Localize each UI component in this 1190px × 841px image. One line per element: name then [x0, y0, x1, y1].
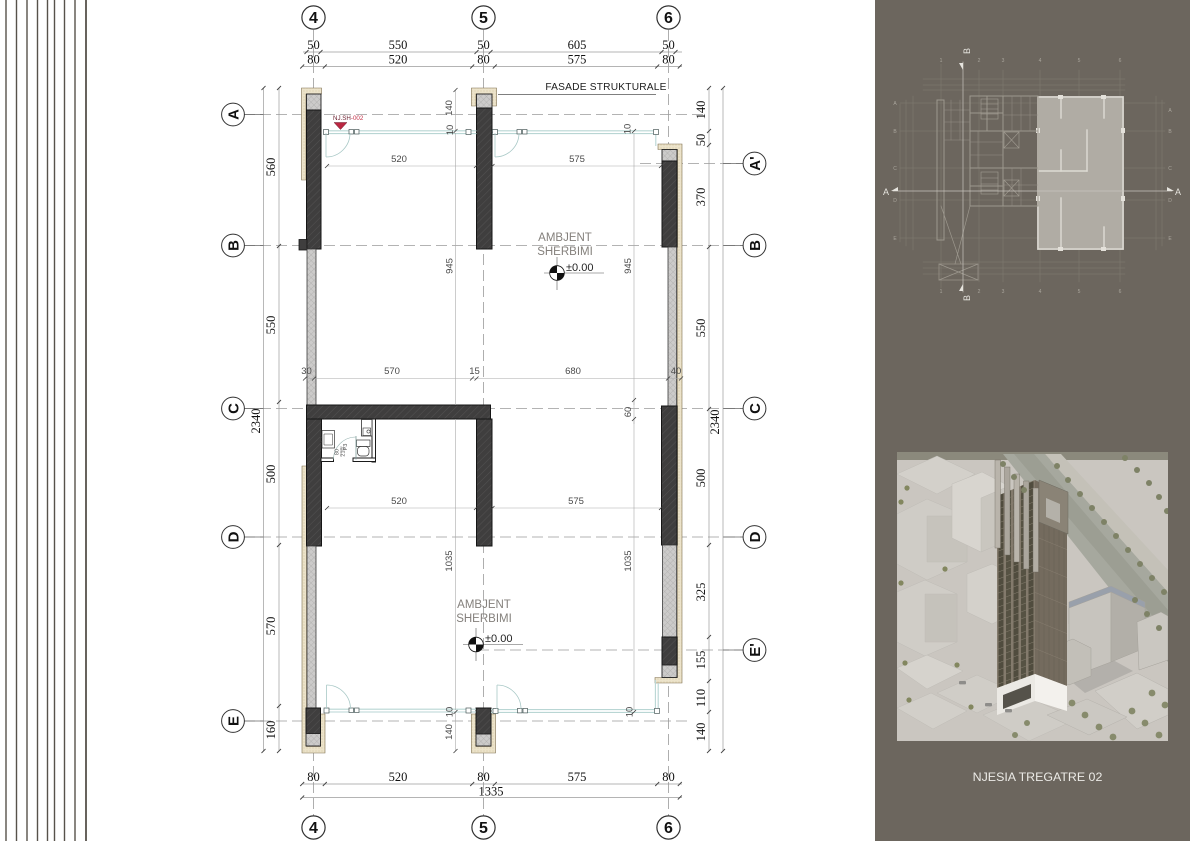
svg-text:325: 325	[694, 583, 708, 602]
svg-text:B: B	[1168, 129, 1172, 135]
svg-text:1035: 1035	[623, 550, 634, 571]
svg-text:945: 945	[445, 258, 456, 274]
svg-text:570: 570	[384, 366, 400, 377]
svg-text:5: 5	[1078, 58, 1081, 64]
svg-text:50: 50	[694, 134, 708, 147]
svg-text:AMBJENT: AMBJENT	[538, 232, 592, 244]
svg-text:520: 520	[391, 496, 407, 507]
svg-text:155: 155	[694, 651, 708, 670]
svg-text:575: 575	[568, 53, 587, 67]
svg-text:680: 680	[565, 366, 581, 377]
svg-text:1035: 1035	[444, 550, 455, 571]
svg-text:A: A	[893, 101, 897, 107]
svg-text:D: D	[893, 198, 897, 204]
svg-text:2340: 2340	[249, 409, 263, 434]
svg-text:SHERBIMI: SHERBIMI	[537, 246, 593, 258]
svg-text:4: 4	[309, 10, 318, 27]
svg-text:50: 50	[477, 38, 490, 52]
svg-text:80: 80	[662, 770, 675, 784]
svg-text:D: D	[747, 531, 764, 542]
svg-text:520: 520	[389, 770, 408, 784]
svg-text:80: 80	[662, 53, 675, 67]
svg-text:A: A	[883, 187, 889, 197]
svg-text:E: E	[893, 236, 897, 242]
svg-text:A: A	[226, 109, 243, 120]
svg-text:6: 6	[664, 10, 673, 27]
svg-text:575: 575	[568, 770, 587, 784]
svg-text:2: 2	[978, 58, 981, 64]
svg-text:E: E	[226, 716, 243, 726]
svg-text:SHERBIMI: SHERBIMI	[456, 613, 512, 625]
svg-text:2: 2	[978, 289, 981, 295]
svg-text:80: 80	[307, 770, 320, 784]
svg-text:140: 140	[444, 724, 455, 740]
svg-text:210: 210	[341, 447, 347, 456]
svg-text:550: 550	[264, 316, 278, 335]
svg-text:C: C	[226, 403, 243, 414]
svg-text:B: B	[226, 240, 243, 251]
svg-text:575: 575	[568, 496, 584, 507]
svg-text:160: 160	[264, 721, 278, 740]
svg-text:5: 5	[479, 820, 488, 837]
svg-text:NJ.SH-002: NJ.SH-002	[333, 115, 364, 122]
svg-text:2340: 2340	[708, 410, 722, 435]
svg-text:D: D	[226, 531, 243, 542]
svg-text:E': E'	[747, 643, 764, 657]
svg-text:550: 550	[694, 319, 708, 338]
svg-text:1: 1	[940, 289, 943, 295]
svg-text:500: 500	[264, 465, 278, 484]
svg-text:570: 570	[264, 617, 278, 636]
svg-text:140: 140	[694, 101, 708, 120]
svg-text:6: 6	[1119, 289, 1122, 295]
svg-text:140: 140	[444, 100, 455, 116]
svg-text:B: B	[962, 48, 972, 54]
svg-text:575: 575	[569, 154, 585, 165]
svg-text:1: 1	[940, 58, 943, 64]
svg-text:10: 10	[445, 707, 456, 718]
svg-text:B: B	[893, 129, 897, 135]
svg-text:4: 4	[1039, 289, 1042, 295]
svg-text:D: D	[1168, 198, 1172, 204]
svg-text:FASADE STRUKTURALE: FASADE STRUKTURALE	[545, 82, 666, 93]
svg-text:1335: 1335	[479, 785, 504, 799]
svg-text:4: 4	[1039, 58, 1042, 64]
svg-text:10: 10	[623, 124, 634, 135]
svg-text:B: B	[962, 295, 972, 301]
svg-text:50: 50	[662, 38, 675, 52]
svg-text:A: A	[1175, 187, 1181, 197]
svg-text:40: 40	[671, 366, 682, 377]
svg-text:550: 550	[389, 38, 408, 52]
svg-text:500: 500	[694, 469, 708, 488]
svg-text:10: 10	[625, 707, 636, 718]
svg-text:3: 3	[1002, 289, 1005, 295]
svg-text:C: C	[893, 166, 897, 172]
svg-text:5: 5	[479, 10, 488, 27]
svg-text:605: 605	[568, 38, 587, 52]
svg-text:4: 4	[309, 820, 318, 837]
svg-text:±0.00: ±0.00	[566, 262, 593, 274]
svg-text:AMBJENT: AMBJENT	[457, 599, 511, 611]
svg-text:80: 80	[477, 53, 490, 67]
svg-text:60: 60	[623, 407, 634, 418]
svg-text:E: E	[1168, 236, 1172, 242]
svg-text:A': A'	[747, 156, 764, 170]
svg-text:B: B	[747, 240, 764, 251]
svg-text:C: C	[1168, 166, 1172, 172]
svg-text:945: 945	[623, 258, 634, 274]
svg-text:30: 30	[301, 366, 312, 377]
svg-text:10: 10	[445, 125, 456, 136]
svg-text:140: 140	[694, 723, 708, 742]
svg-text:520: 520	[391, 154, 407, 165]
svg-text:±0.00: ±0.00	[485, 633, 512, 645]
svg-text:C: C	[747, 403, 764, 414]
svg-text:50: 50	[307, 38, 320, 52]
svg-text:6: 6	[1119, 58, 1122, 64]
svg-text:15: 15	[469, 366, 480, 377]
svg-text:3: 3	[1002, 58, 1005, 64]
svg-text:370: 370	[694, 188, 708, 207]
svg-text:520: 520	[389, 53, 408, 67]
svg-text:80: 80	[477, 770, 490, 784]
svg-text:80: 80	[307, 53, 320, 67]
svg-text:560: 560	[264, 158, 278, 177]
svg-text:6: 6	[664, 820, 673, 837]
svg-text:A: A	[1168, 108, 1172, 114]
svg-text:110: 110	[694, 689, 708, 707]
svg-text:5: 5	[1078, 289, 1081, 295]
